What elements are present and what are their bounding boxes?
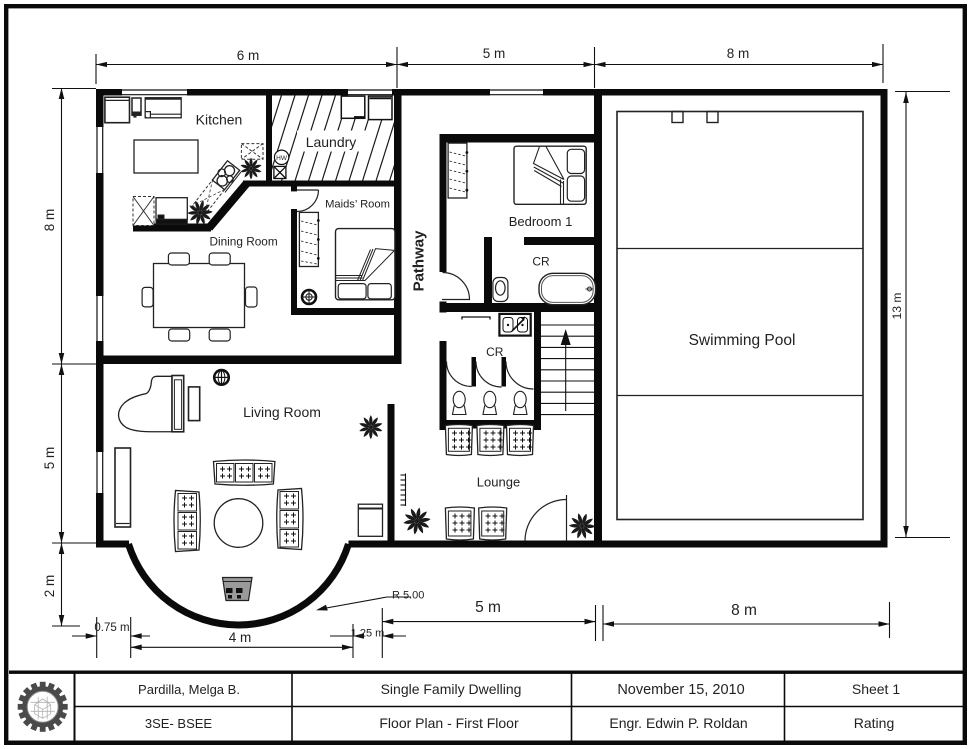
svg-text:Swimming Pool: Swimming Pool — [689, 332, 796, 349]
svg-text:Pathway: Pathway — [411, 230, 428, 292]
svg-text:2 m: 2 m — [42, 575, 57, 598]
svg-text:Kitchen: Kitchen — [196, 112, 243, 128]
svg-text:8 m: 8 m — [731, 602, 757, 619]
svg-text:6 m: 6 m — [237, 48, 260, 63]
svg-text:Bedroom 1: Bedroom 1 — [509, 214, 573, 229]
svg-text:Pardilla, Melga B.: Pardilla, Melga B. — [138, 682, 240, 697]
svg-text:Single Family Dwelling: Single Family Dwelling — [381, 681, 522, 697]
svg-text:CR: CR — [486, 345, 504, 359]
svg-text:13 m: 13 m — [890, 293, 904, 320]
svg-text:Dining Room: Dining Room — [209, 234, 277, 248]
svg-text:Engr. Edwin P. Roldan: Engr. Edwin P. Roldan — [609, 715, 747, 731]
svg-text:5 m: 5 m — [475, 599, 501, 616]
svg-text:1.25 m: 1.25 m — [351, 628, 385, 640]
svg-text:November 15, 2010: November 15, 2010 — [617, 682, 744, 698]
svg-text:4 m: 4 m — [229, 630, 252, 645]
svg-text:Laundry: Laundry — [306, 134, 357, 150]
svg-text:CR: CR — [532, 255, 550, 269]
svg-text:0.75 m: 0.75 m — [94, 622, 129, 634]
svg-text:Floor Plan - First Floor: Floor Plan - First Floor — [379, 715, 519, 731]
svg-text:8 m: 8 m — [727, 46, 750, 61]
svg-text:5 m: 5 m — [42, 447, 57, 470]
svg-text:3SE- BSEE: 3SE- BSEE — [145, 716, 213, 731]
svg-text:5 m: 5 m — [483, 46, 506, 61]
svg-text:Sheet 1: Sheet 1 — [852, 681, 900, 697]
svg-text:Living Room: Living Room — [243, 404, 321, 420]
svg-text:Maids’ Room: Maids’ Room — [325, 199, 390, 211]
svg-text:R 5.00: R 5.00 — [392, 590, 424, 602]
svg-text:8 m: 8 m — [42, 209, 57, 232]
svg-text:Lounge: Lounge — [477, 475, 520, 490]
svg-text:HW: HW — [276, 155, 288, 162]
svg-text:Rating: Rating — [854, 715, 894, 731]
